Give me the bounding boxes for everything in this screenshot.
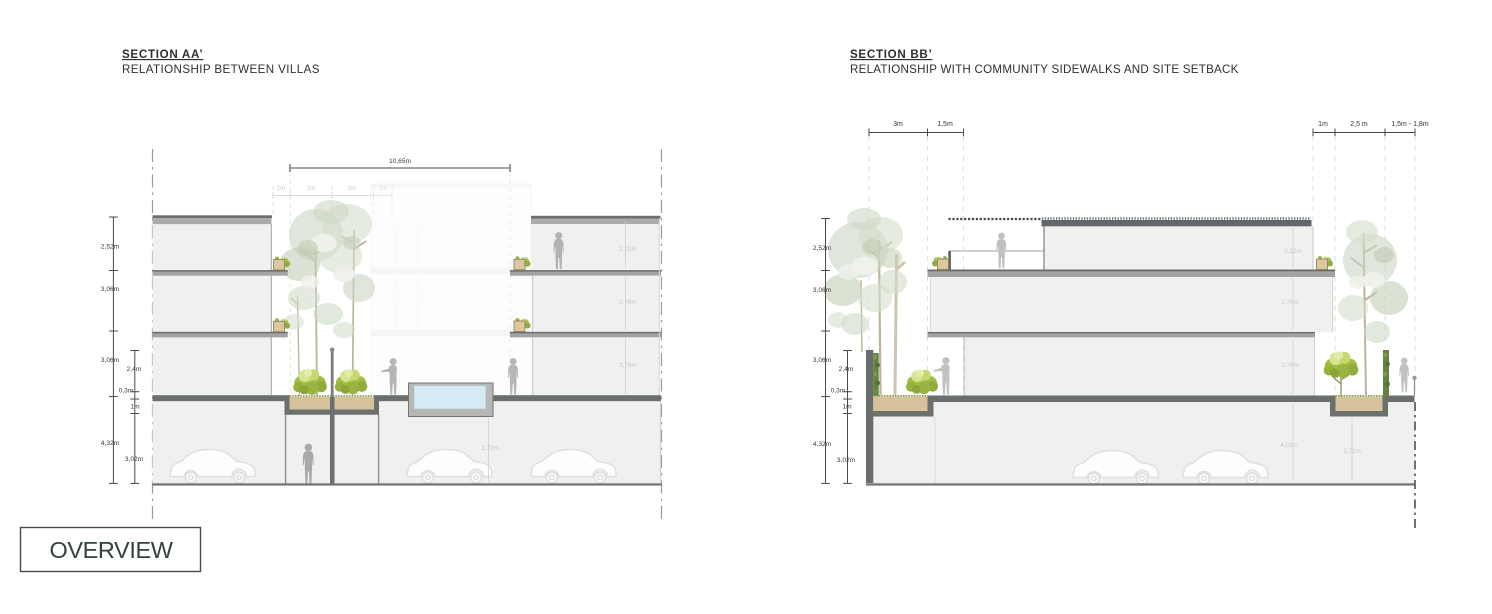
- svg-text:2m: 2m: [348, 185, 357, 192]
- svg-text:2,4m: 2,4m: [839, 366, 854, 373]
- svg-text:1,5m - 1,8m: 1,5m - 1,8m: [1391, 121, 1429, 128]
- svg-text:0,3m: 0,3m: [831, 388, 846, 395]
- svg-text:1,5m: 1,5m: [937, 121, 953, 128]
- svg-text:3,06m: 3,06m: [101, 357, 120, 364]
- svg-text:2,5 m: 2,5 m: [1350, 121, 1368, 128]
- svg-text:2,22m: 2,22m: [1284, 248, 1302, 255]
- svg-text:2,52m: 2,52m: [813, 245, 832, 252]
- svg-text:1m: 1m: [130, 404, 140, 411]
- svg-text:2,76m: 2,76m: [619, 362, 637, 369]
- svg-text:RELATIONSHIP WITH COMMUNITY SI: RELATIONSHIP WITH COMMUNITY SIDEWALKS AN…: [850, 63, 1239, 76]
- svg-text:3m: 3m: [893, 121, 903, 128]
- svg-text:10,65m: 10,65m: [389, 158, 412, 165]
- svg-text:SECTION BB’: SECTION BB’: [850, 48, 932, 61]
- svg-text:SECTION AA’: SECTION AA’: [122, 48, 203, 61]
- svg-text:1m: 1m: [842, 404, 852, 411]
- svg-text:4,32m: 4,32m: [101, 440, 120, 447]
- svg-text:2,52m: 2,52m: [101, 244, 120, 251]
- svg-text:3,06m: 3,06m: [813, 287, 832, 294]
- svg-text:3,06m: 3,06m: [101, 286, 120, 293]
- svg-text:RELATIONSHIP BETWEEN VILLAS: RELATIONSHIP BETWEEN VILLAS: [122, 63, 320, 76]
- svg-text:3,06m: 3,06m: [813, 357, 832, 364]
- svg-text:1m: 1m: [277, 185, 286, 192]
- svg-text:2,72m: 2,72m: [481, 445, 499, 452]
- svg-text:2,22m: 2,22m: [619, 246, 637, 253]
- svg-text:4,02m: 4,02m: [1280, 442, 1298, 449]
- svg-text:1m: 1m: [1318, 121, 1328, 128]
- svg-text:2,76m: 2,76m: [1281, 299, 1299, 306]
- svg-text:2,76m: 2,76m: [619, 299, 637, 306]
- svg-text:3,02m: 3,02m: [125, 456, 144, 463]
- svg-text:4,32m: 4,32m: [813, 441, 832, 448]
- svg-text:3,02m: 3,02m: [837, 457, 856, 464]
- svg-text:2,4m: 2,4m: [127, 366, 142, 373]
- svg-text:OVERVIEW: OVERVIEW: [49, 537, 173, 563]
- svg-text:2m: 2m: [307, 185, 316, 192]
- svg-text:2,76m: 2,76m: [1281, 362, 1299, 369]
- svg-text:0,3m: 0,3m: [119, 388, 134, 395]
- svg-text:2,72m: 2,72m: [1343, 448, 1361, 455]
